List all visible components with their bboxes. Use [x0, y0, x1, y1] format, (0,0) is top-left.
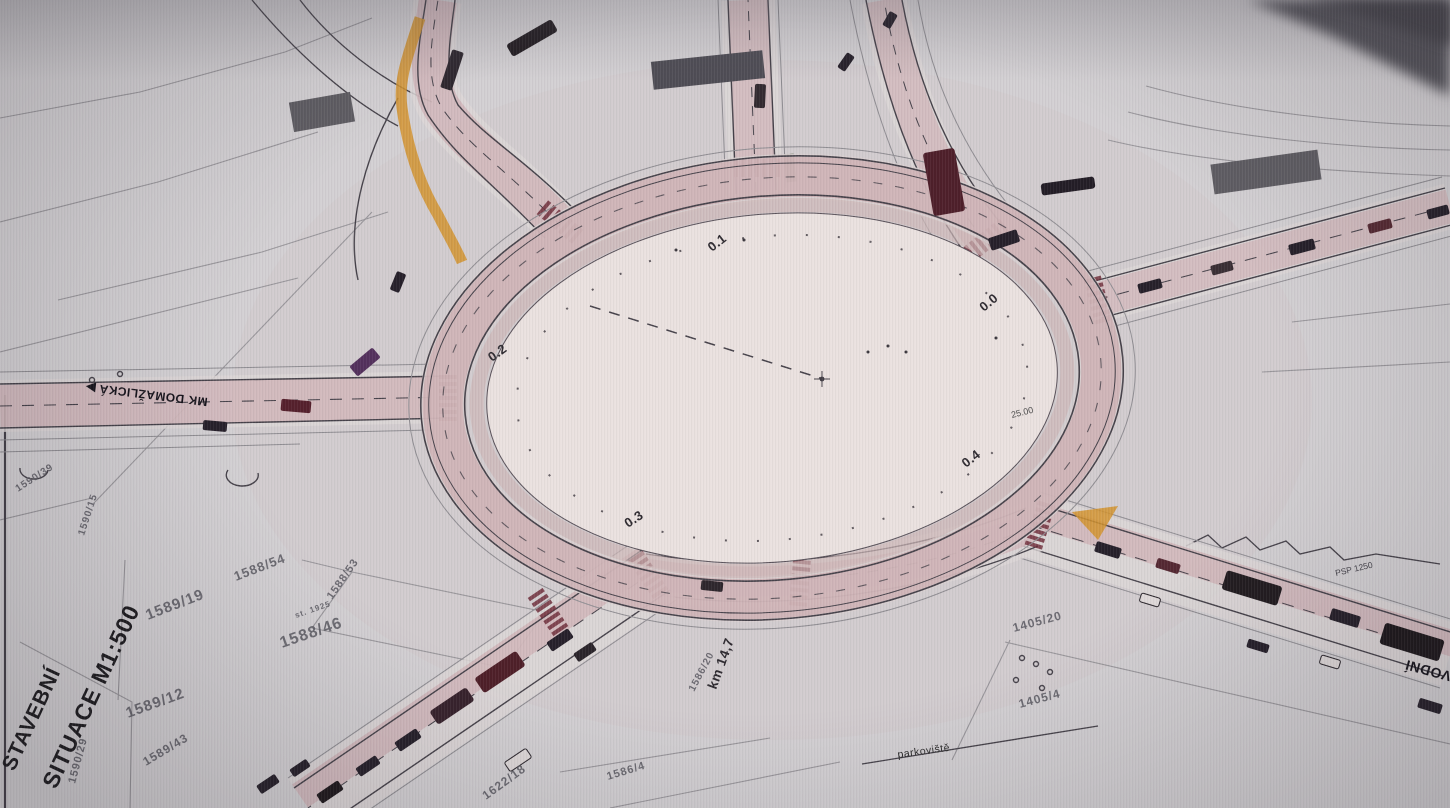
- photographed-roundabout-plan: STAVEBNÍ SITUACE M1:500 MK DOMAŽLICKÁ ▶ …: [0, 0, 1450, 808]
- vehicle-car: [754, 84, 766, 109]
- vehicle-car: [203, 420, 228, 432]
- site-plan-drawing: STAVEBNÍ SITUACE M1:500 MK DOMAŽLICKÁ ▶ …: [0, 0, 1450, 808]
